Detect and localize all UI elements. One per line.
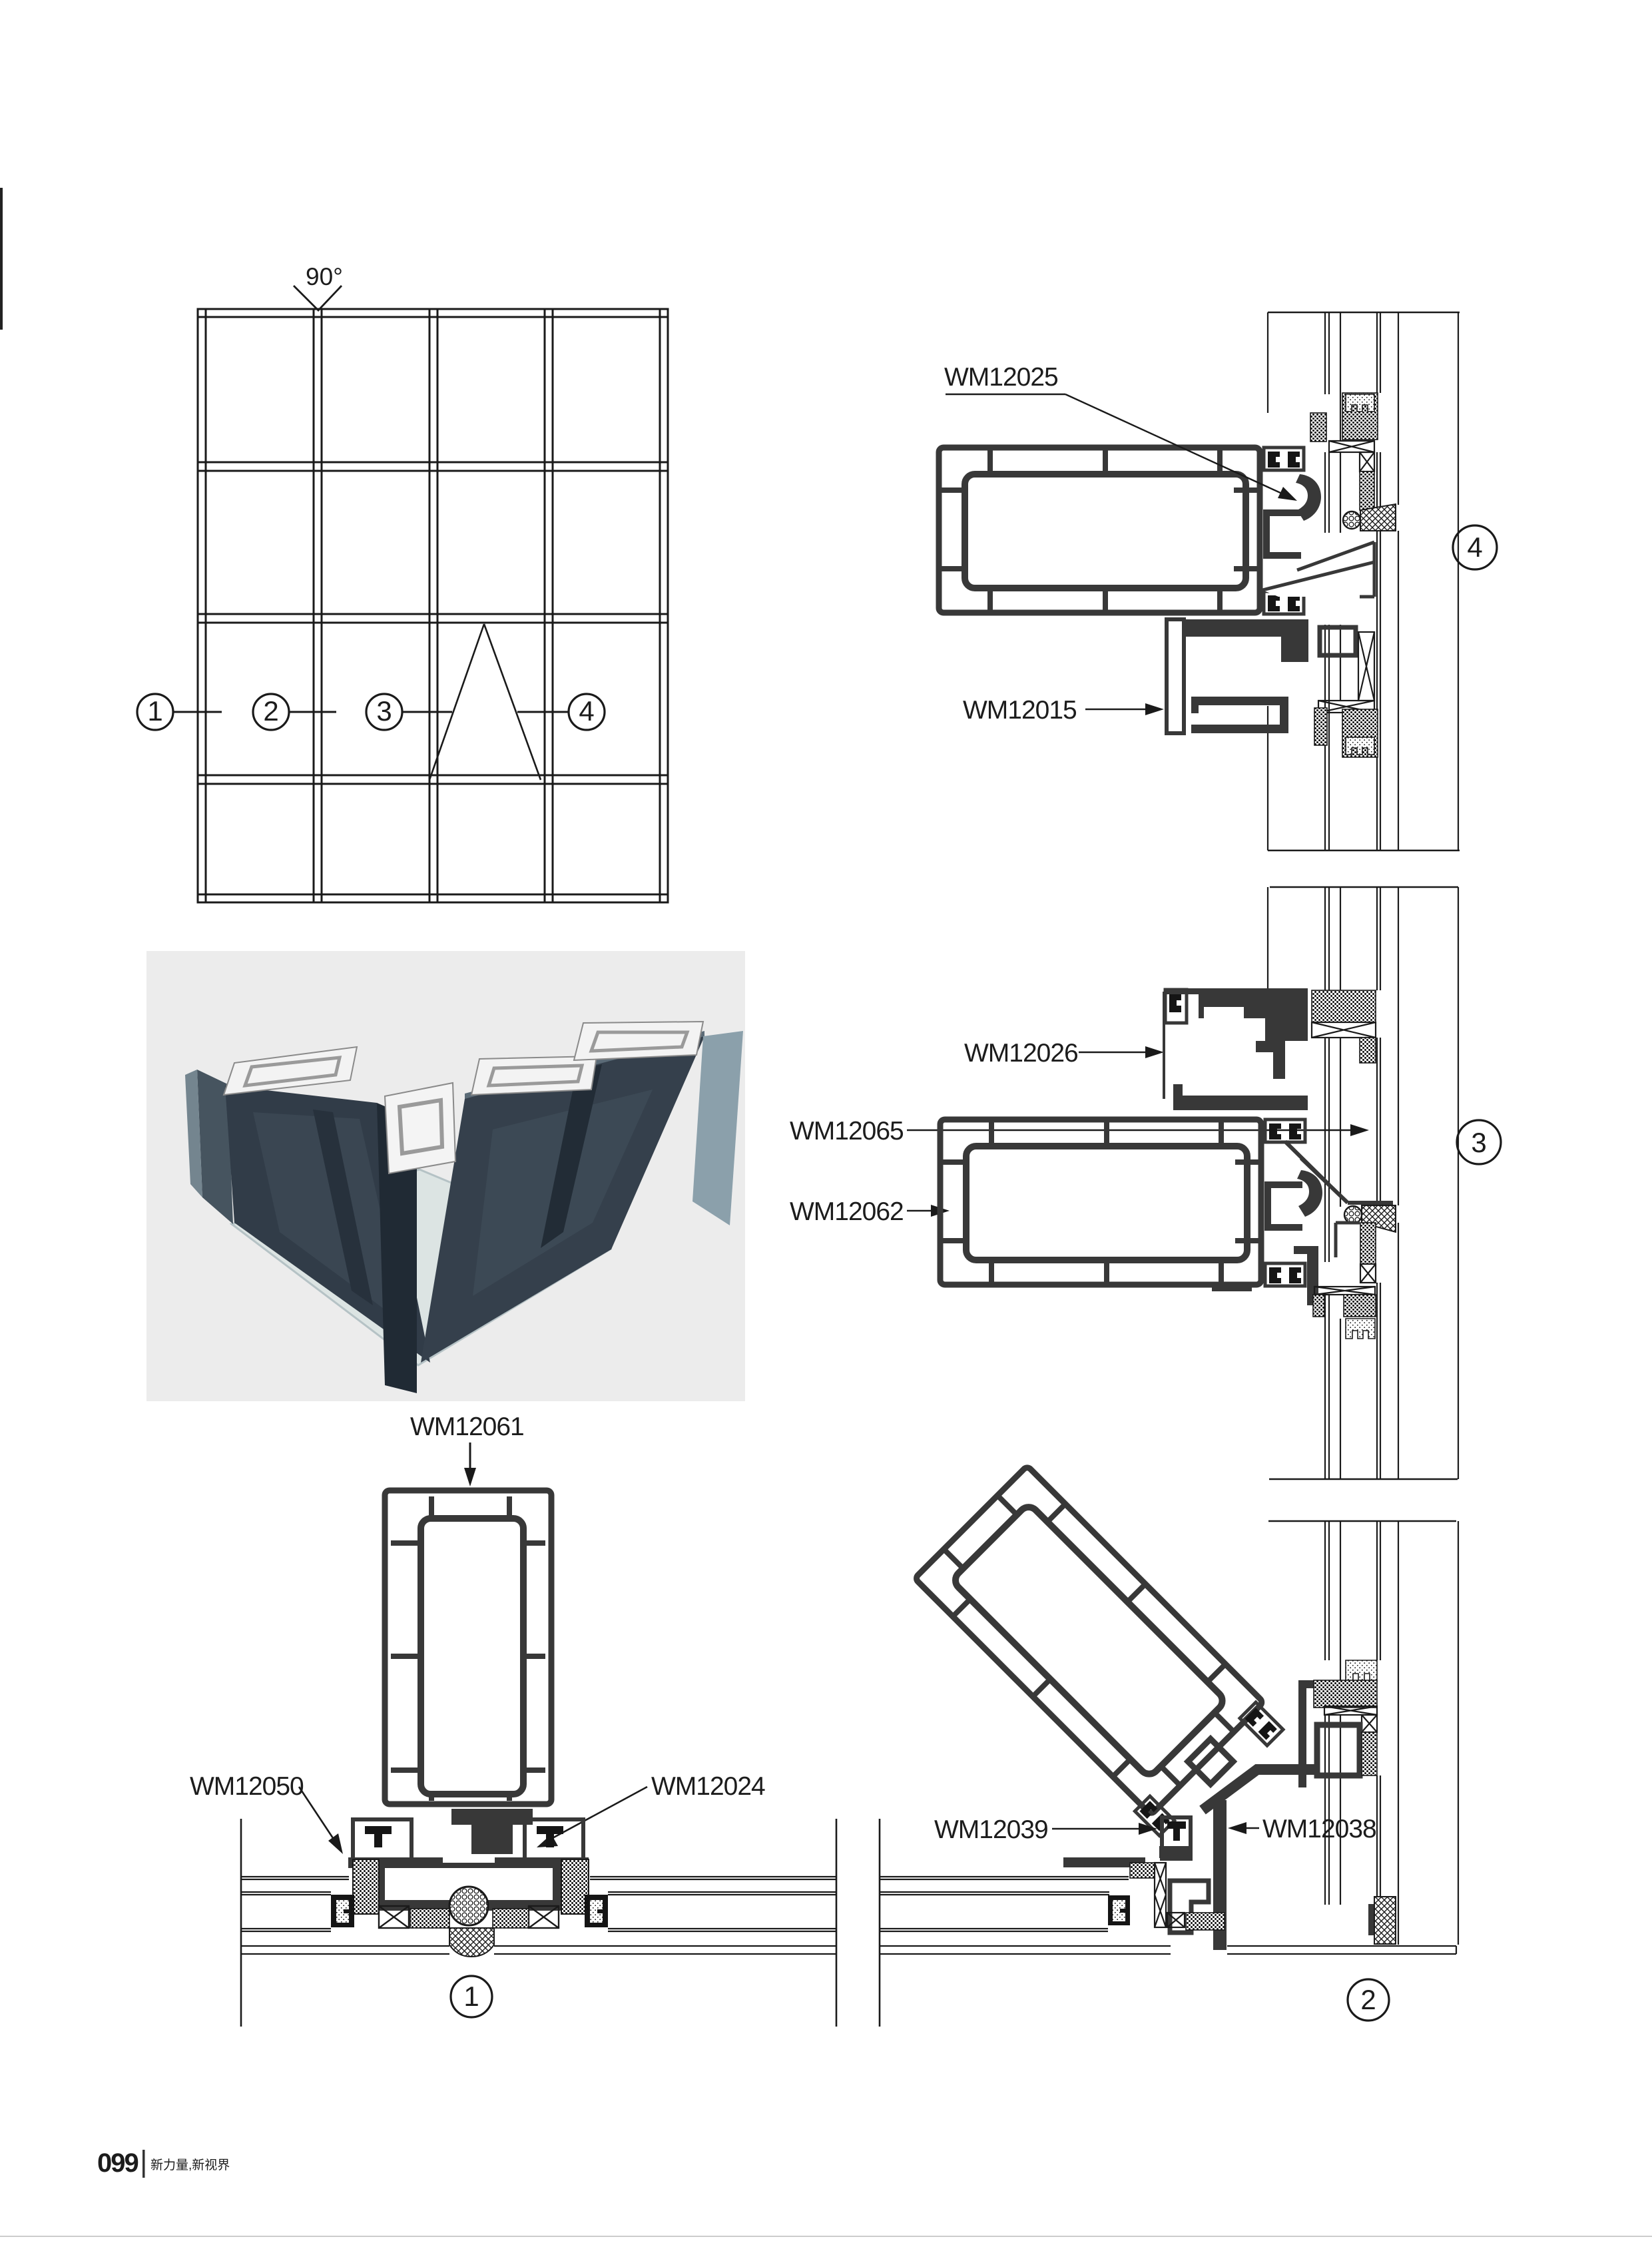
svg-text:WM12015: WM12015	[963, 696, 1077, 725]
svg-text:WM12038: WM12038	[1262, 1815, 1376, 1843]
svg-text:WM12026: WM12026	[964, 1039, 1078, 1068]
svg-text:2: 2	[263, 695, 278, 727]
svg-text:1: 1	[463, 1981, 479, 2012]
svg-text:3: 3	[1471, 1127, 1486, 1158]
svg-text:WM12065: WM12065	[790, 1117, 904, 1145]
svg-text:3: 3	[376, 695, 392, 727]
svg-text:099: 099	[97, 2148, 138, 2178]
svg-text:WM12062: WM12062	[790, 1197, 904, 1226]
svg-text:WM12039: WM12039	[934, 1815, 1048, 1844]
svg-text:WM12025: WM12025	[944, 363, 1058, 392]
svg-text:90°: 90°	[306, 263, 343, 290]
svg-text:4: 4	[579, 695, 594, 727]
svg-text:WM12024: WM12024	[651, 1772, 765, 1801]
svg-text:2: 2	[1360, 1984, 1376, 2015]
svg-text:WM12061: WM12061	[410, 1413, 524, 1441]
svg-text:1: 1	[147, 695, 162, 727]
svg-text:WM12050: WM12050	[190, 1772, 304, 1801]
svg-text:4: 4	[1467, 531, 1482, 563]
svg-text:新力量,新视界: 新力量,新视界	[150, 2158, 230, 2172]
